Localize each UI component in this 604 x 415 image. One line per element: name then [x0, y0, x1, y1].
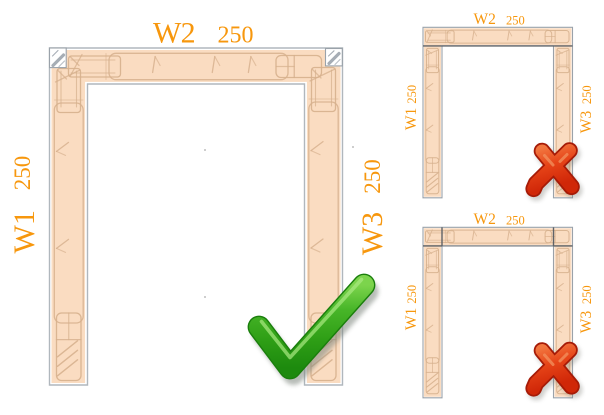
- svg-text:W2: W2: [153, 16, 195, 49]
- svg-text:250: 250: [405, 285, 419, 304]
- svg-text:250: 250: [580, 85, 594, 104]
- svg-text:250: 250: [506, 213, 525, 227]
- svg-text:250: 250: [10, 156, 35, 191]
- svg-text:250: 250: [580, 285, 594, 304]
- svg-text:W2: W2: [474, 11, 496, 28]
- svg-text:W1: W1: [403, 108, 420, 130]
- svg-text:W1: W1: [8, 210, 41, 253]
- svg-text:250: 250: [506, 13, 525, 27]
- svg-text:250: 250: [360, 159, 385, 194]
- svg-text:250: 250: [218, 23, 254, 49]
- svg-text:W3: W3: [578, 311, 595, 334]
- svg-text:W3: W3: [356, 212, 389, 255]
- svg-text:W3: W3: [578, 111, 595, 134]
- svg-text:W2: W2: [474, 211, 496, 228]
- svg-text:250: 250: [405, 85, 419, 104]
- svg-text:W1: W1: [403, 308, 420, 330]
